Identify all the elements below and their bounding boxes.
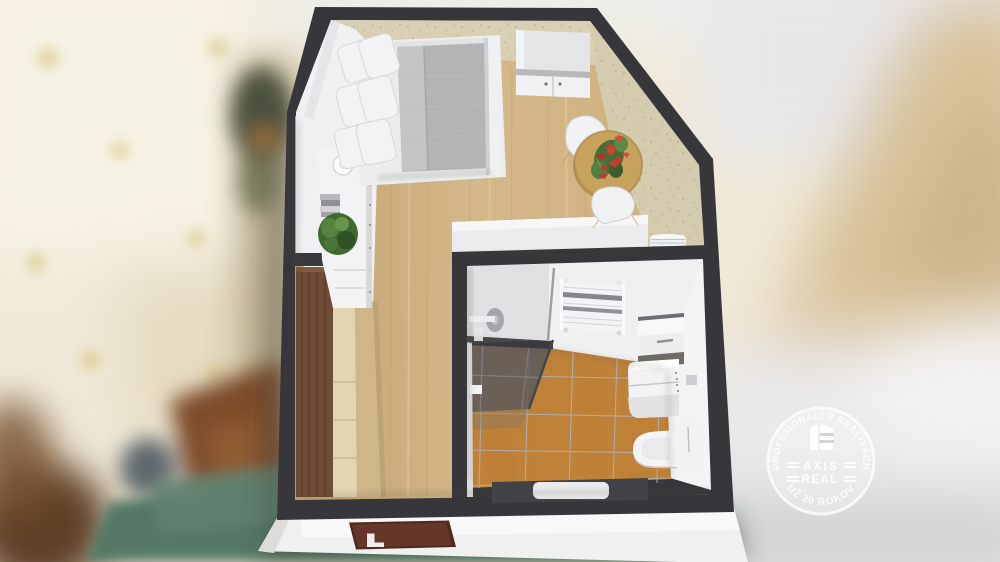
svg-text:REAL: REAL: [802, 474, 839, 486]
svg-text:AXIS: AXIS: [803, 461, 839, 473]
